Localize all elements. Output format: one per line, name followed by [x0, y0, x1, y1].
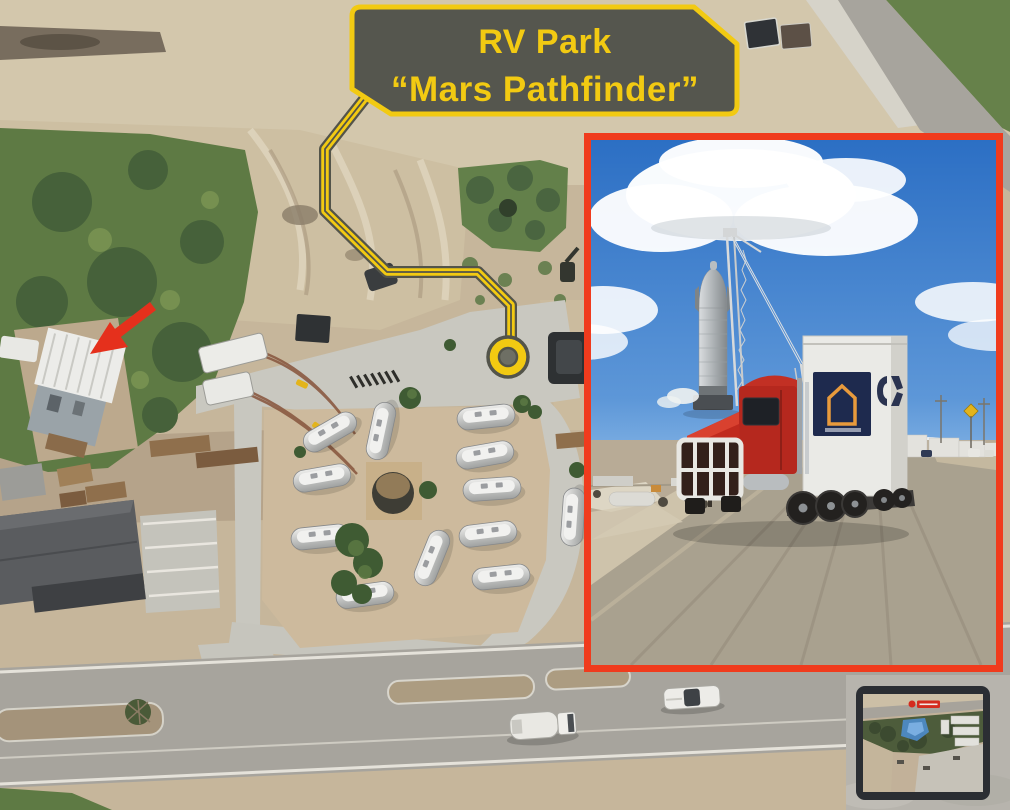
fuel-tank — [743, 474, 789, 490]
thumbnail-aerial — [863, 694, 983, 792]
test-stand — [693, 395, 733, 410]
red-watermark-logo — [909, 701, 941, 709]
callout-box — [352, 7, 737, 114]
location-marker-icon — [488, 337, 528, 377]
dumpster — [295, 314, 331, 343]
locator-thumbnail — [846, 675, 1010, 810]
rocket-transport-photo — [591, 140, 996, 665]
dark-roof-building — [0, 500, 146, 618]
locator-thumbnail-image — [846, 675, 1010, 810]
grille-guard — [679, 440, 741, 498]
palapa-hut — [366, 462, 422, 520]
white-tank — [609, 492, 655, 506]
blue-car — [921, 450, 932, 457]
median-tree — [125, 699, 151, 725]
boxabl-container — [803, 336, 907, 496]
inset-photo — [584, 133, 1003, 672]
annotated-aerial-screenshot: RV Park “Mars Pathfinder” — [0, 0, 1010, 810]
